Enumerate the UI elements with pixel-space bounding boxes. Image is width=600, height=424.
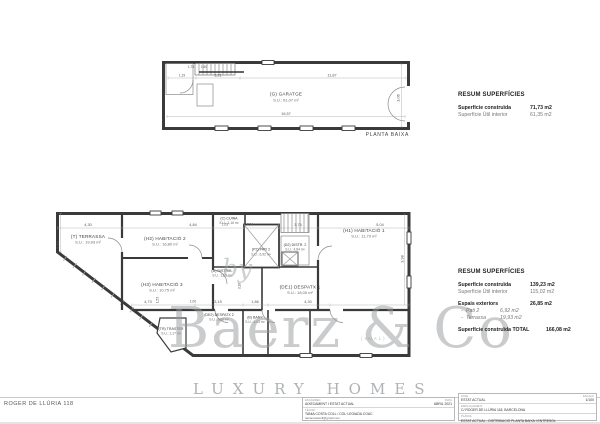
room-label-habitacio1: (H1) HABITACIÓ 1	[343, 227, 385, 233]
titleblock-row: FASE ESTAT ACTUAL ESCALA 1/100	[459, 394, 596, 404]
dash: -	[458, 315, 466, 322]
room-area-habitacio2: S.U.: 16,80 m²	[152, 242, 178, 247]
resum-superficies-bottom: RESUM SUPERFÍCIES Superfície construïda …	[458, 269, 596, 334]
resum-row: Superfície construïda 71,73 m2	[458, 105, 596, 112]
dim-text: 3,74	[294, 223, 301, 227]
resum-label: Superfície Útil interior	[458, 112, 530, 119]
watermark-by: by	[222, 254, 252, 283]
resum-label: Superfície construïda	[458, 105, 530, 112]
dim-text: 1,50	[201, 65, 207, 69]
titleblock-plan-info: FASE ESTAT ACTUAL ESCALA 1/100 EMPLAÇAME…	[458, 393, 597, 421]
drawing-sheet: 1,19 3,21 11,87 16,57 3,06 1,78 1,50 (G)…	[0, 0, 600, 424]
resum-row: Superfície construïda 139,23 m2	[458, 282, 596, 289]
room-label-garatge: (G) GARATGE	[270, 92, 302, 97]
resum-value: 139,23 m2	[530, 282, 555, 289]
dim-text: 5,85	[56, 241, 60, 248]
dim-text: 3,18	[238, 283, 242, 289]
dim-text: 3,06	[397, 94, 401, 101]
resum-row: Superfície Útil interior 61,35 m2	[458, 112, 596, 119]
dim-text: 11,87	[327, 73, 336, 77]
resum-label: Pati 2	[466, 308, 500, 315]
titleblock-row: EMPLAÇAMENT C/ ROGER DE LLÚRIA 118, BARC…	[459, 404, 596, 414]
resum-value: 6,92 m2	[500, 308, 519, 315]
dim-text: 3,21	[214, 73, 221, 77]
dim-text: 1,53	[156, 297, 160, 303]
room-area-habitacio1: S.U.: 11,79 m²	[351, 234, 377, 239]
room-area-despatx1: S.U.: 18,00 m²	[287, 290, 313, 295]
resum-label: Superfície Útil interior	[458, 289, 530, 296]
resum-bottom-title: RESUM SUPERFÍCIES	[458, 269, 596, 275]
plan-planta-baixa: 1,19 3,21 11,87 16,57 3,06 1,78 1,50 (G)…	[164, 61, 411, 139]
resum-value: 61,35 m2	[530, 112, 552, 119]
field-email: taniacostacoll@gmail.com	[305, 416, 452, 420]
field-value: C/ ROGER DE LLÚRIA 118, BARCELONA	[461, 408, 594, 412]
field-value: AIXECAMENT I ESTAT ACTUAL	[305, 402, 434, 406]
resum-value: 166,08 m2	[546, 327, 571, 334]
dim-text: 1,78	[188, 65, 194, 69]
sheet-reference: ROGER DE LLÚRIA 118	[4, 401, 74, 407]
resum-row: Superfície Útil interior 115,02 m2	[458, 289, 596, 296]
resum-value: 26,85 m2	[530, 301, 552, 308]
room-area-habitacio3: S.U.: 10,75 m²	[149, 288, 175, 293]
resum-label: Superfície construïda TOTAL	[458, 327, 546, 334]
resum-label: Superfície construïda	[458, 282, 530, 289]
titleblock-author: ENCÀRREC AIXECAMENT I ESTAT ACTUAL DATA …	[302, 397, 455, 421]
field-value: ABRIL 2021	[434, 402, 452, 406]
dim-text: 16,57	[281, 112, 291, 116]
resum-value: 71,73 m2	[530, 105, 552, 112]
room-label-distr2: (D2) DISTR. 2	[284, 243, 307, 247]
dim-text: 4,84	[189, 223, 196, 227]
resum-value: 115,02 m2	[530, 289, 554, 296]
dim-text: 2,94	[247, 222, 253, 226]
room-label-pati2: (P2) PATI 2	[252, 248, 270, 252]
room-area-distr2: S.U.: 4,84 m²	[285, 248, 305, 252]
resum-total-row: Superfície construïda TOTAL 166,08 m2	[458, 327, 596, 334]
room-area-garatge: S.U.: 61,07 m²	[273, 98, 299, 103]
field-value: ESTAT ACTUAL	[461, 398, 583, 402]
garage-door-opening	[405, 86, 411, 122]
room-label-terrassa: (T) TERRASSA	[71, 234, 106, 239]
resum-subrow: - Pati 2 6,92 m2	[458, 308, 596, 315]
resum-label: Terrassa	[466, 315, 500, 322]
resum-value: 19,93 m2	[500, 315, 522, 322]
room-label-despatx1: (DE1) DESPATX 1	[280, 285, 321, 290]
resum-subrow: - Terrassa 19,93 m2	[458, 315, 596, 322]
room-area-cuina: S.U.: 1,16 m²	[219, 221, 239, 225]
resum-top-title: RESUM SUPERFÍCIES	[458, 92, 596, 98]
dim-text: 4,30	[84, 223, 91, 227]
plan-caption: PLANTA BAIXA	[366, 132, 409, 138]
dim-text: 5,04	[376, 223, 383, 227]
dim-text: 3,98	[401, 255, 405, 262]
room-label-habitacio2: (H2) HABITACIÓ 2	[144, 235, 186, 241]
titleblock-row: TÈCNIC TANIA COSTA COLL / COL·LEGIADA CO…	[303, 408, 454, 421]
dim-text: 4,73	[144, 300, 151, 304]
resum-row: Espais exteriors 26,85 m2	[458, 301, 596, 308]
room-area-terrassa: S.U.: 19,93 m²	[75, 240, 101, 245]
dash: -	[458, 308, 466, 315]
watermark-tagline: LUXURY HOMES	[193, 380, 434, 398]
resum-superficies-top: RESUM SUPERFÍCIES Superfície construïda …	[458, 92, 596, 119]
room-area-pati2: S.U.: 6,92 m²	[251, 253, 271, 257]
room-label-habitacio3: (H3) HABITACIÓ 3	[141, 281, 183, 287]
field-value: 1/100	[583, 398, 594, 402]
dim-text: 1,19	[179, 73, 185, 77]
titleblock-row: ENCÀRREC AIXECAMENT I ESTAT ACTUAL DATA …	[303, 398, 454, 408]
watermark-brand: Baerz & Co	[168, 296, 488, 361]
resum-label: Espais exteriors	[458, 301, 530, 308]
room-label-cuina: (C) CUINA	[220, 217, 238, 221]
